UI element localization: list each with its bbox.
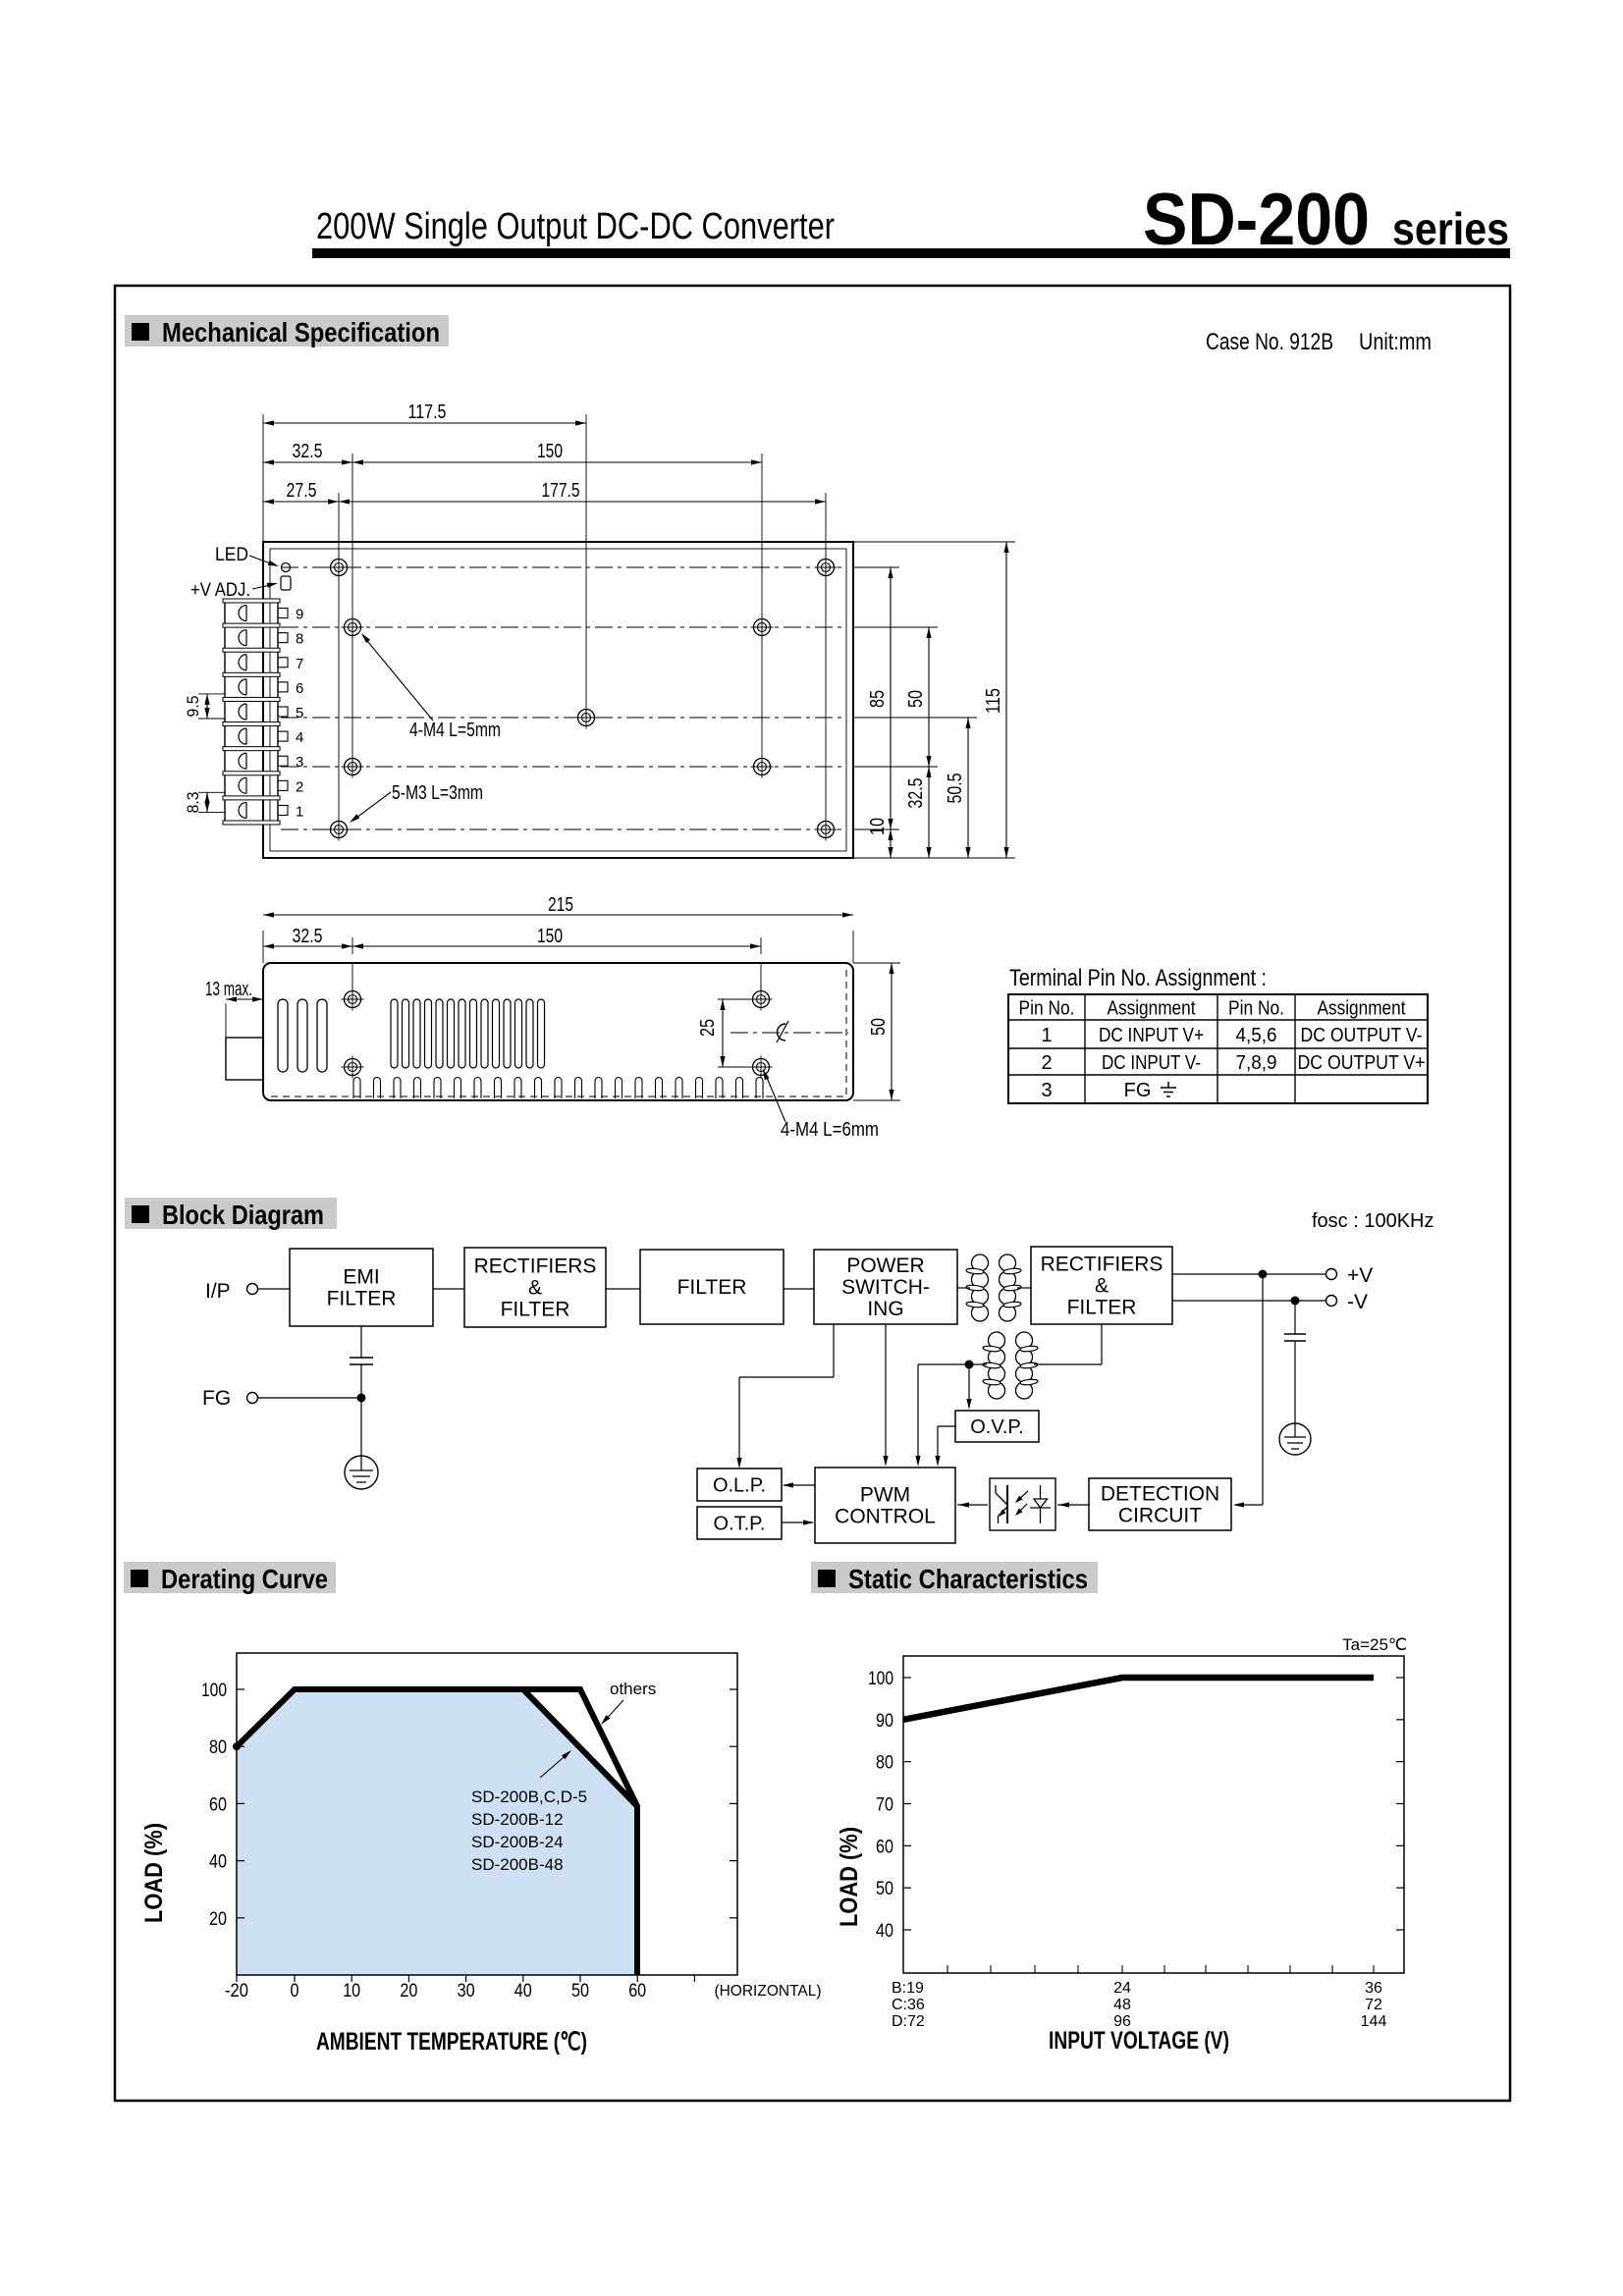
svg-text:RECTIFIERS: RECTIFIERS [474,1255,597,1278]
svg-text:1: 1 [296,803,303,820]
svg-text:4: 4 [296,729,303,746]
svg-text:LED: LED [215,545,248,565]
svg-text:Pin No.: Pin No. [1228,998,1284,1020]
svg-text:SD-200: SD-200 [1143,178,1370,260]
svg-text:144: 144 [1361,2013,1387,2030]
svg-text:0: 0 [291,1981,299,2002]
svg-text:Terminal Pin No. Assignment :: Terminal Pin No. Assignment : [1009,965,1267,991]
svg-text:D:72: D:72 [892,2013,925,2030]
svg-text:25: 25 [697,1019,719,1037]
svg-text:I/P: I/P [205,1280,231,1303]
svg-text:CIRCUIT: CIRCUIT [1118,1505,1202,1527]
svg-text:FG: FG [202,1387,231,1410]
svg-text:O.V.P.: O.V.P. [970,1416,1024,1438]
svg-text:B:19: B:19 [892,1980,924,1997]
svg-text:Assignment: Assignment [1318,998,1406,1020]
svg-text:20: 20 [400,1981,417,2002]
svg-text:4-M4 L=6mm: 4-M4 L=6mm [781,1119,879,1141]
svg-text:FG: FG [1124,1080,1152,1101]
svg-text:Case No. 912B: Case No. 912B [1206,329,1333,355]
svg-text:+V ADJ.: +V ADJ. [190,580,250,601]
svg-text:177.5: 177.5 [542,480,580,502]
svg-text:150: 150 [537,441,563,462]
svg-text:50.5: 50.5 [945,774,966,804]
svg-text:SD-200B-12: SD-200B-12 [471,1810,564,1829]
svg-text:72: 72 [1365,1997,1382,2013]
svg-text:Block Diagram: Block Diagram [162,1200,324,1230]
svg-text:fosc : 100KHz: fosc : 100KHz [1312,1210,1434,1232]
svg-text:36: 36 [1365,1980,1382,1997]
svg-text:70: 70 [876,1794,893,1815]
svg-text:3: 3 [296,754,303,771]
svg-text:24: 24 [1113,1980,1131,1997]
svg-text:RECTIFIERS: RECTIFIERS [1041,1254,1163,1276]
svg-text:SD-200B,C,D-5: SD-200B,C,D-5 [471,1788,587,1806]
svg-text:2: 2 [296,778,303,795]
svg-text:7: 7 [296,656,303,672]
svg-text:90: 90 [876,1711,893,1732]
svg-text:20: 20 [209,1909,227,1930]
svg-text:5: 5 [296,705,303,721]
svg-text:PWM: PWM [860,1484,910,1507]
svg-text:Pin No.: Pin No. [1019,998,1075,1020]
svg-text:200W Single Output DC-DC Conve: 200W Single Output DC-DC Converter [316,206,835,247]
svg-text:3: 3 [1041,1080,1052,1101]
svg-text:48: 48 [1113,1997,1131,2013]
svg-text:7,8,9: 7,8,9 [1236,1052,1277,1074]
svg-text:80: 80 [876,1753,893,1774]
svg-text:8: 8 [296,631,303,648]
svg-text:50: 50 [876,1879,893,1899]
svg-text:C:36: C:36 [892,1997,925,2013]
svg-text:&: & [528,1277,542,1300]
svg-text:DC OUTPUT V+: DC OUTPUT V+ [1298,1052,1426,1074]
svg-text:INPUT VOLTAGE (V): INPUT VOLTAGE (V) [1049,2027,1229,2055]
svg-text:CONTROL: CONTROL [835,1506,936,1528]
svg-text:5-M3 L=3mm: 5-M3 L=3mm [392,782,483,804]
svg-text:60: 60 [876,1837,893,1857]
svg-text:2: 2 [1041,1052,1052,1074]
svg-text:13 max.: 13 max. [205,979,252,1000]
svg-text:32.5: 32.5 [905,778,927,809]
svg-text:+V: +V [1347,1264,1373,1287]
svg-text:FILTER: FILTER [501,1299,570,1321]
svg-text:-V: -V [1347,1291,1368,1313]
svg-text:50: 50 [868,1018,890,1036]
svg-text:DC INPUT V-: DC INPUT V- [1102,1052,1201,1074]
svg-text:-20: -20 [225,1981,248,2002]
svg-text:EMI: EMI [343,1266,379,1289]
svg-text:4-M4 L=5mm: 4-M4 L=5mm [409,720,501,741]
svg-text:SWITCH-: SWITCH- [841,1276,930,1299]
svg-text:SD-200B-48: SD-200B-48 [471,1855,564,1874]
svg-text:9.5: 9.5 [184,695,202,717]
svg-text:O.L.P.: O.L.P. [713,1475,766,1497]
svg-text:32.5: 32.5 [293,441,323,462]
svg-text:Derating Curve: Derating Curve [161,1564,328,1594]
svg-text:60: 60 [628,1981,646,2002]
svg-text:10: 10 [867,818,889,835]
svg-text:9: 9 [296,607,303,623]
svg-text:DETECTION: DETECTION [1101,1483,1219,1506]
svg-text:series: series [1392,203,1509,254]
svg-text:50: 50 [905,690,927,708]
svg-text:O.T.P.: O.T.P. [714,1514,766,1535]
svg-text:10: 10 [343,1981,360,2002]
svg-text:Mechanical Specification: Mechanical Specification [162,317,440,347]
svg-text:ING: ING [867,1298,903,1320]
svg-text:Assignment: Assignment [1108,998,1196,1020]
svg-text:DC INPUT V+: DC INPUT V+ [1099,1025,1204,1046]
svg-text:LOAD (%): LOAD (%) [836,1827,863,1927]
svg-text:FILTER: FILTER [1067,1297,1137,1319]
svg-text:117.5: 117.5 [408,401,447,423]
svg-text:32.5: 32.5 [293,926,323,947]
svg-text:Unit:mm: Unit:mm [1359,329,1432,355]
svg-text:4,5,6: 4,5,6 [1236,1025,1277,1046]
svg-text:85: 85 [867,690,889,708]
svg-text:8.3: 8.3 [184,791,202,813]
svg-text:100: 100 [868,1669,893,1689]
svg-text:40: 40 [876,1921,893,1942]
svg-text:6: 6 [296,680,303,697]
svg-text:LOAD (%): LOAD (%) [140,1823,168,1923]
svg-text:AMBIENT TEMPERATURE (℃): AMBIENT TEMPERATURE (℃) [316,2028,587,2056]
svg-text:30: 30 [458,1981,475,2002]
svg-text:50: 50 [571,1981,589,2002]
svg-text:40: 40 [514,1981,532,2002]
svg-text:others: others [610,1680,656,1698]
svg-text:150: 150 [537,926,563,947]
svg-text:(HORIZONTAL): (HORIZONTAL) [714,1983,821,2000]
svg-text:115: 115 [983,688,1004,714]
svg-text:1: 1 [1041,1025,1052,1046]
svg-text:Static Characteristics: Static Characteristics [848,1564,1088,1594]
svg-text:SD-200B-24: SD-200B-24 [471,1833,564,1851]
svg-text:POWER: POWER [846,1255,924,1277]
svg-text:FILTER: FILTER [327,1288,397,1310]
svg-text:DC OUTPUT V-: DC OUTPUT V- [1301,1025,1423,1046]
svg-text:60: 60 [209,1794,227,1815]
svg-text:215: 215 [548,894,573,916]
svg-text:27.5: 27.5 [287,480,317,502]
svg-text:Ta=25℃: Ta=25℃ [1342,1635,1407,1654]
svg-text:&: & [1095,1275,1109,1298]
svg-text:100: 100 [201,1681,227,1701]
svg-text:80: 80 [209,1737,227,1758]
svg-text:FILTER: FILTER [677,1276,747,1299]
svg-text:40: 40 [209,1852,227,1873]
